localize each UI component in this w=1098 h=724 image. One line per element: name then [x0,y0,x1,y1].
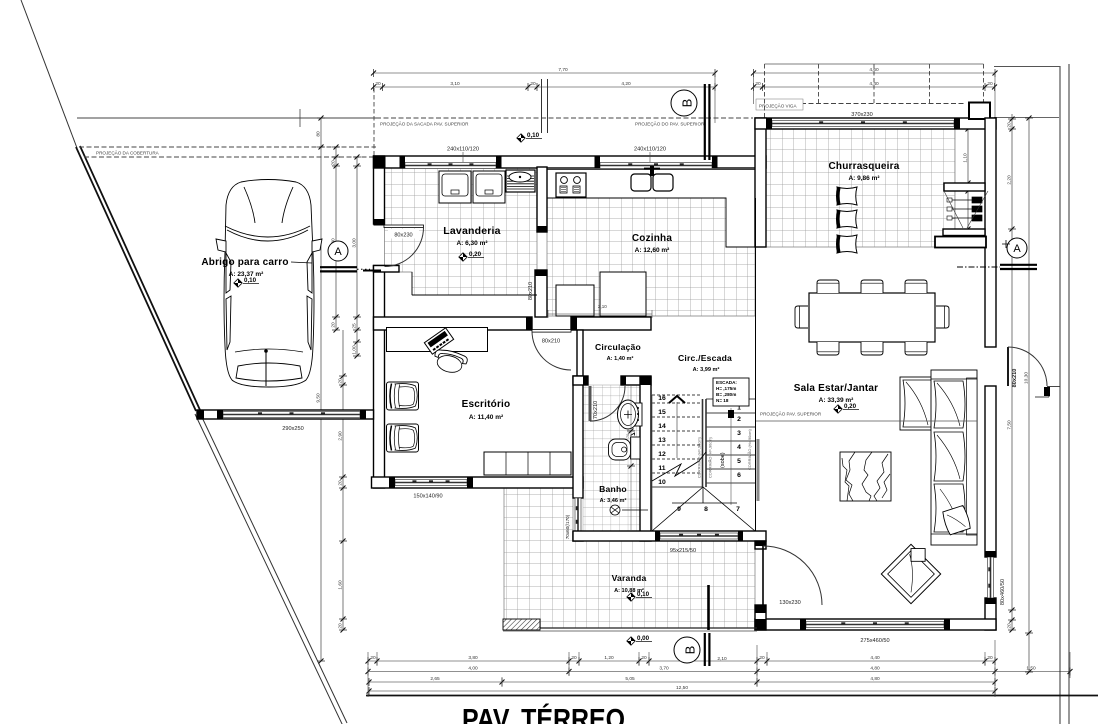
svg-text:1,10: 1,10 [963,153,969,163]
svg-text:Abrigo para carro: Abrigo para carro [201,257,288,268]
svg-text:20: 20 [571,655,577,661]
svg-text:3,00: 3,00 [352,238,358,248]
svg-text:7,70: 7,70 [558,67,568,73]
svg-text:4,20: 4,20 [621,81,631,87]
svg-text:95x215/50: 95x215/50 [670,548,696,554]
svg-text:70x60(/170): 70x60(/170) [565,514,570,539]
svg-text:CORRIMÃO (H=,90cm): CORRIMÃO (H=,90cm) [747,429,752,470]
svg-text:80x460/50: 80x460/50 [1000,579,1006,605]
svg-text:4,40: 4,40 [870,655,880,661]
svg-text:Cozinha: Cozinha [632,233,673,244]
svg-text:1,00: 1,00 [352,345,358,355]
svg-text:Lavanderia: Lavanderia [443,225,500,237]
svg-text:13: 13 [658,437,666,444]
svg-text:20: 20 [530,81,536,87]
svg-text:20: 20 [375,81,381,87]
svg-text:4,00: 4,00 [468,666,478,672]
svg-text:Banho: Banho [599,484,627,494]
svg-text:A: 1,40 m²: A: 1,40 m² [607,355,634,362]
svg-text:20: 20 [331,160,337,166]
svg-text:25: 25 [352,323,358,329]
svg-text:12,50: 12,50 [676,685,688,691]
svg-text:PROJEÇÃO PAV. SUPERIOR: PROJEÇÃO PAV. SUPERIOR [760,411,822,417]
svg-text:20: 20 [1007,623,1013,629]
svg-text:10: 10 [658,479,666,486]
svg-text:15: 15 [658,409,666,416]
svg-text:240x110/120: 240x110/120 [634,147,666,153]
svg-text:H= ,175m: H= ,175m [716,386,736,391]
svg-text:11: 11 [658,465,665,472]
svg-text:B: B [682,646,697,655]
svg-text:A: A [1013,243,1021,255]
svg-text:150x140/90: 150x140/90 [413,494,442,500]
svg-text:B: B [679,99,694,108]
svg-text:20: 20 [759,655,765,661]
svg-text:70x210: 70x210 [593,401,599,419]
svg-text:B= ,280m: B= ,280m [716,392,736,397]
svg-text:0,20: 0,20 [844,403,857,410]
svg-text:A: 12,60 m²: A: 12,60 m² [635,247,671,254]
svg-text:N= 18: N= 18 [716,398,729,403]
svg-text:PROJEÇÃO DO PAV. SUPERIOR: PROJEÇÃO DO PAV. SUPERIOR [635,121,705,127]
svg-text:80x210: 80x210 [542,339,560,345]
svg-text:20: 20 [331,322,337,328]
svg-text:2,20: 2,20 [1007,175,1013,185]
svg-text:290x250: 290x250 [282,426,303,432]
svg-text:2,10: 2,10 [598,304,607,309]
svg-text:370x230: 370x230 [851,112,872,118]
svg-text:A: 6,30 m²: A: 6,30 m² [456,240,488,247]
svg-text:4,40: 4,40 [869,81,879,87]
svg-text:A: 3,46 m²: A: 3,46 m² [600,497,627,504]
svg-text:0,10: 0,10 [244,277,257,284]
svg-text:20: 20 [987,655,993,661]
svg-text:80: 80 [316,131,322,137]
svg-text:2: 2 [737,416,741,423]
svg-text:4,80: 4,80 [870,676,880,682]
svg-text:1,60: 1,60 [338,580,344,590]
svg-text:3,80: 3,80 [468,655,478,661]
svg-text:CORRIMÃO (H=,90cm): CORRIMÃO (H=,90cm) [697,437,702,478]
svg-text:A: 11,40 m²: A: 11,40 m² [469,414,504,421]
svg-text:20: 20 [755,81,761,87]
svg-text:7,50: 7,50 [1007,420,1013,430]
svg-text:80x210: 80x210 [528,282,534,300]
svg-text:3,10: 3,10 [450,81,460,87]
svg-text:20: 20 [987,81,993,87]
svg-text:6: 6 [737,472,741,479]
svg-text:Circulação: Circulação [595,342,641,352]
svg-text:1,20: 1,20 [604,655,614,661]
svg-text:240x110/120: 240x110/120 [447,147,479,153]
svg-text:Varanda: Varanda [612,573,647,583]
svg-text:9: 9 [677,506,681,513]
svg-text:5: 5 [737,458,741,465]
svg-text:ESCADA:: ESCADA: [716,380,737,385]
svg-text:4: 4 [737,444,741,451]
svg-text:20: 20 [641,655,647,661]
svg-text:4,80: 4,80 [870,666,880,672]
svg-text:0,10: 0,10 [637,591,650,598]
svg-text:8: 8 [704,506,708,513]
svg-text:0,00: 0,00 [637,635,650,642]
svg-text:3: 3 [737,430,741,437]
svg-text:20: 20 [370,655,376,661]
svg-text:A: 9,86 m²: A: 9,86 m² [848,175,880,182]
svg-text:3,70: 3,70 [659,666,669,672]
svg-text:PROJEÇÃO DA COBERTURA: PROJEÇÃO DA COBERTURA [96,150,160,156]
svg-text:20: 20 [338,623,344,629]
svg-text:7: 7 [736,506,740,513]
svg-text:CORRIMÃO (H=,90cm): CORRIMÃO (H=,90cm) [708,437,713,478]
svg-text:A: 3,99 m²: A: 3,99 m² [693,366,720,373]
svg-text:0,20: 0,20 [469,251,482,258]
svg-text:PAV. TÉRREO: PAV. TÉRREO [462,702,625,724]
svg-text:20: 20 [338,378,344,384]
svg-text:(sobe): (sobe) [720,452,726,468]
svg-text:80x230: 80x230 [394,233,412,239]
svg-text:Sala Estar/Jantar: Sala Estar/Jantar [794,383,879,394]
svg-text:12: 12 [658,451,666,458]
svg-text:1,50: 1,50 [1026,666,1036,672]
svg-text:Circ./Escada: Circ./Escada [678,353,732,363]
svg-text:9,50: 9,50 [316,393,322,403]
svg-text:275x460/50: 275x460/50 [860,638,889,644]
svg-text:14: 14 [658,423,666,430]
svg-text:Churrasqueira: Churrasqueira [829,161,900,172]
svg-text:130x230: 130x230 [779,600,800,606]
svg-text:PROJEÇÃO DA SACADA PAV. SUPERI: PROJEÇÃO DA SACADA PAV. SUPERIOR [380,121,469,127]
svg-text:70: 70 [626,434,630,438]
svg-text:2,65: 2,65 [430,676,440,682]
svg-text:20: 20 [1007,122,1013,128]
svg-text:80x210: 80x210 [1012,369,1018,388]
svg-text:A: A [334,246,342,258]
svg-text:10,30: 10,30 [1024,372,1030,384]
svg-text:Escritório: Escritório [462,399,511,410]
svg-text:2,90: 2,90 [338,431,344,441]
svg-text:0,10: 0,10 [527,132,540,139]
svg-text:5,05: 5,05 [625,676,635,682]
svg-text:16: 16 [658,395,666,402]
svg-text:4,60: 4,60 [869,67,879,73]
svg-text:2,10: 2,10 [717,656,727,662]
svg-text:20: 20 [338,480,344,486]
